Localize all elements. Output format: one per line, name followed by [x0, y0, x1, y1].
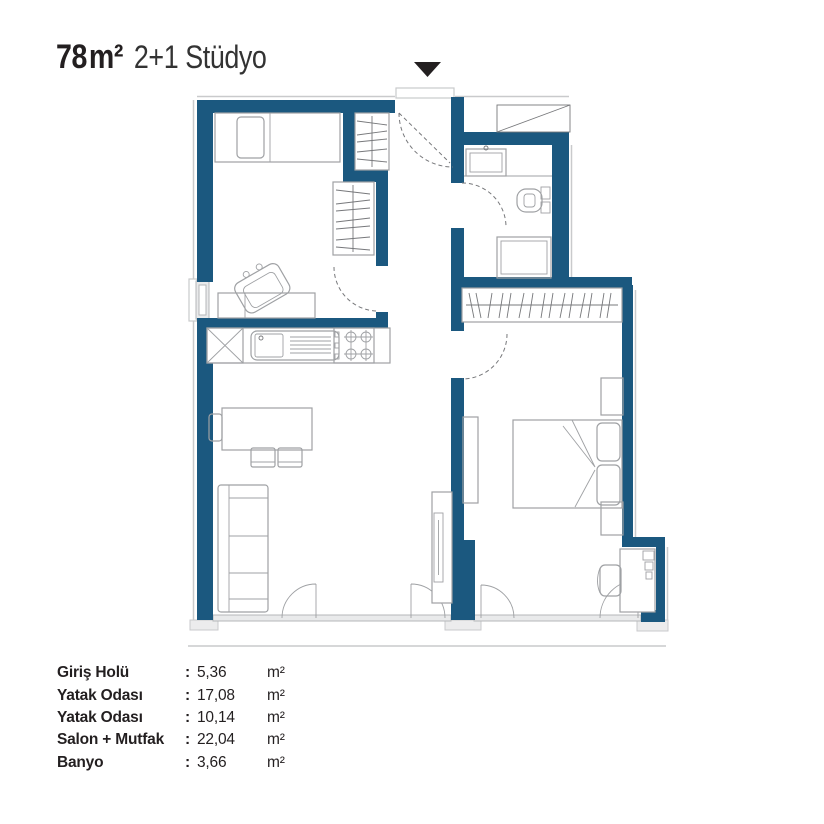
legend-row-banyo: Banyo : 3,66 m²	[57, 752, 285, 774]
desk-nook	[620, 549, 655, 612]
room-label: Yatak Odası	[57, 709, 185, 727]
legend-row-yatak-odasi-1: Yatak Odası : 17,08 m²	[57, 684, 285, 706]
single-bed	[215, 113, 340, 162]
salon-balcony-door-left	[282, 584, 316, 618]
room-label: Salon + Mutfak	[57, 731, 185, 749]
toilet	[517, 187, 550, 213]
bedroom2-window	[474, 615, 641, 621]
floorplan-page: 78 m² 2+1 Stüdyo	[0, 0, 824, 824]
legend-row-yatak-odasi-2: Yatak Odası : 10,14 m²	[57, 707, 285, 729]
room-unit: m²	[267, 709, 285, 727]
salon-mutfak	[207, 328, 452, 612]
dining-table	[209, 408, 312, 467]
room-area: 5,36	[197, 664, 267, 682]
shower	[497, 237, 551, 278]
salon-window	[213, 615, 451, 621]
room-unit: m²	[267, 687, 285, 705]
bedroom2-balcony-door-left	[481, 585, 514, 618]
double-bed	[513, 420, 622, 508]
room-label: Yatak Odası	[57, 687, 185, 705]
bedroom1-side-window	[189, 279, 209, 321]
bedroom1-door-swing	[334, 267, 377, 311]
bedroom2-closet	[462, 288, 622, 322]
room-area: 22,04	[197, 731, 267, 749]
sofa	[218, 485, 268, 612]
balcony-windows	[213, 580, 641, 621]
room-area: 10,14	[197, 709, 267, 727]
room-unit: m²	[267, 754, 285, 772]
kitchen-counter	[207, 328, 390, 363]
room-unit: m²	[267, 664, 285, 682]
room-area: 3,66	[197, 754, 267, 772]
room-unit: m²	[267, 731, 285, 749]
tv-unit	[432, 492, 452, 603]
entrance-threshold	[396, 88, 454, 98]
bathroom	[464, 146, 552, 278]
wardrobe-2	[333, 182, 374, 255]
legend-row-giris-holu: Giriş Holü : 5,36 m²	[57, 662, 285, 684]
entrance-direction-marker-icon	[414, 62, 441, 77]
bathroom-door-swing	[462, 183, 506, 227]
entrance-door-swing	[399, 113, 453, 167]
void-shaft	[497, 105, 570, 132]
desk-nook-chair	[598, 565, 622, 596]
room-legend: Giriş Holü : 5,36 m² Yatak Odası : 17,08…	[57, 662, 285, 774]
sink	[466, 146, 506, 176]
bedroom1	[215, 113, 389, 318]
room-area: 17,08	[197, 687, 267, 705]
room-label: Giriş Holü	[57, 664, 185, 682]
dresser	[463, 417, 478, 503]
room-label: Banyo	[57, 754, 185, 772]
bedroom2-door-swing	[462, 334, 507, 379]
wall-caps	[190, 620, 668, 631]
nightstand-top	[601, 378, 623, 415]
legend-row-salon-mutfak: Salon + Mutfak : 22,04 m²	[57, 729, 285, 751]
wardrobe-1	[355, 113, 389, 170]
